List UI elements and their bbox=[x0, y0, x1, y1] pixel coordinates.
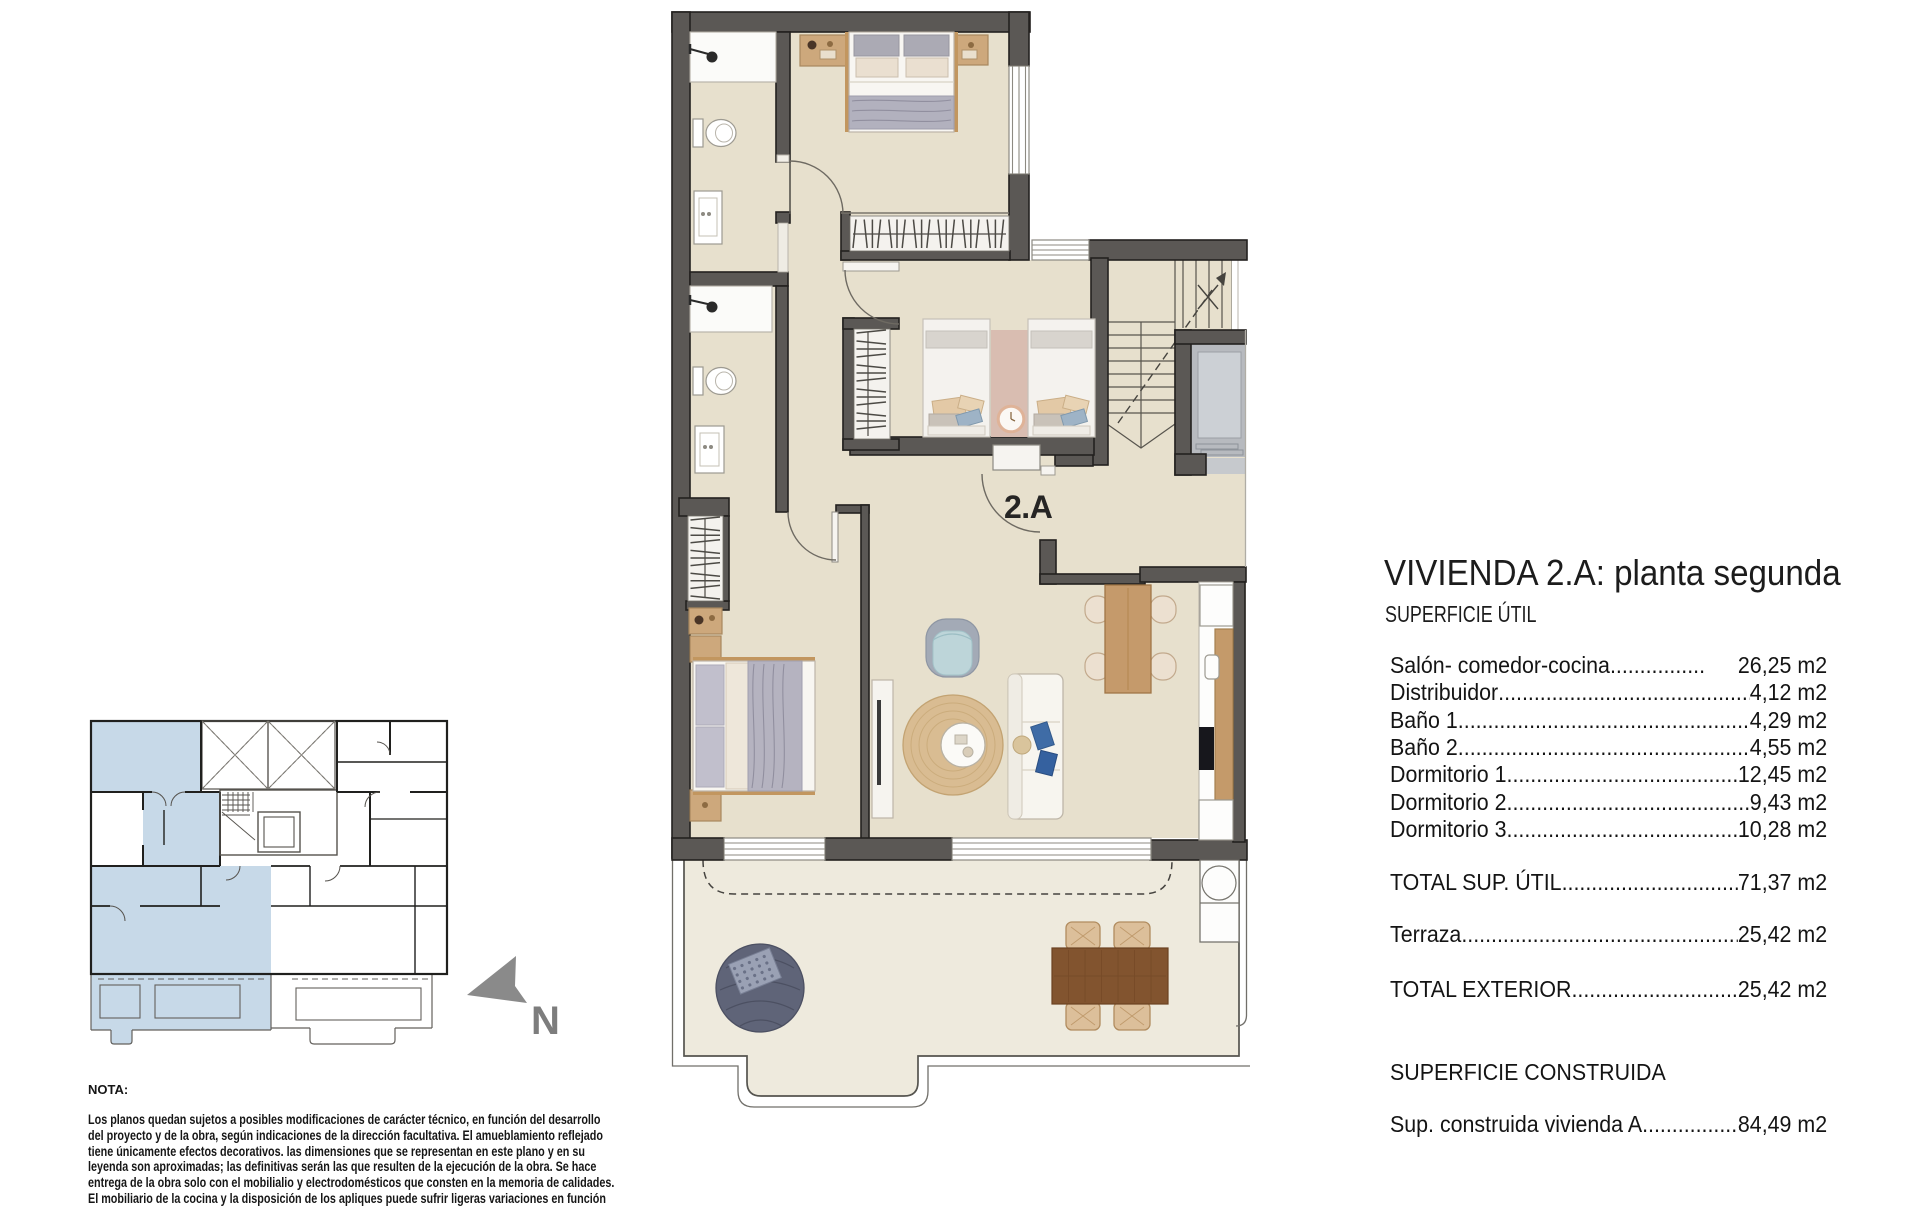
svg-text:N: N bbox=[531, 999, 560, 1043]
svg-text:2.A: 2.A bbox=[1004, 489, 1053, 525]
